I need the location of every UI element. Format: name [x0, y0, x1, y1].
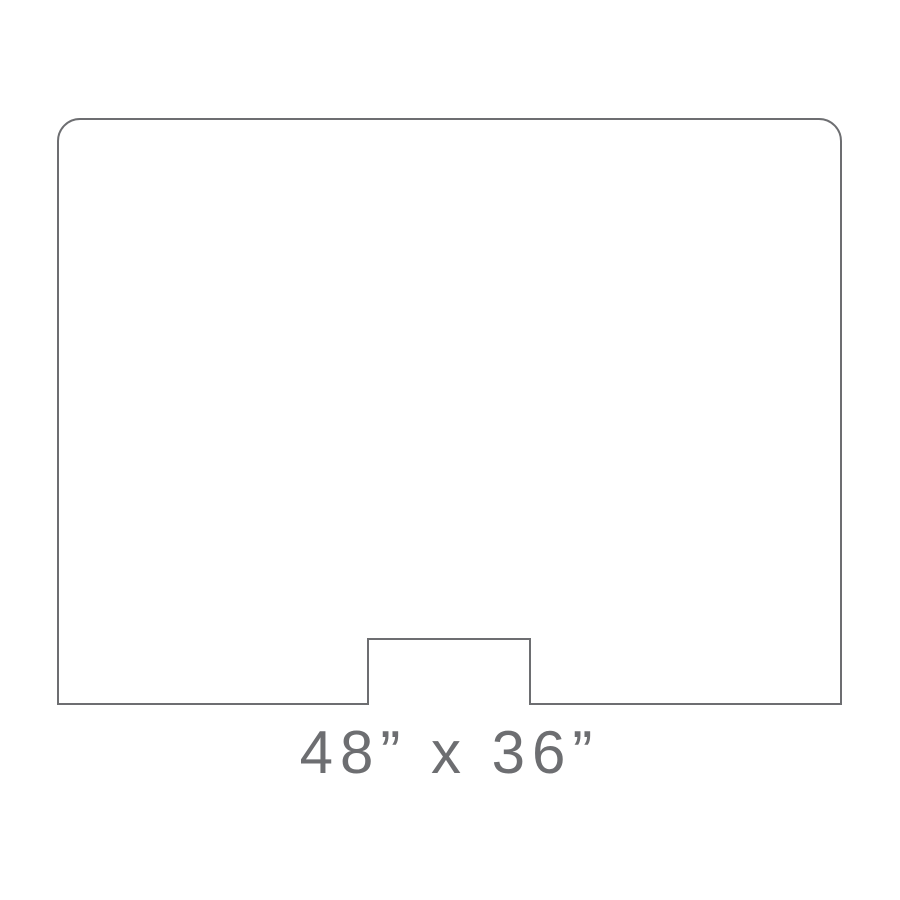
diagram-stage: 48” x 36”: [0, 0, 900, 900]
panel-shape: [58, 119, 841, 704]
dimension-label: 48” x 36”: [58, 718, 841, 787]
